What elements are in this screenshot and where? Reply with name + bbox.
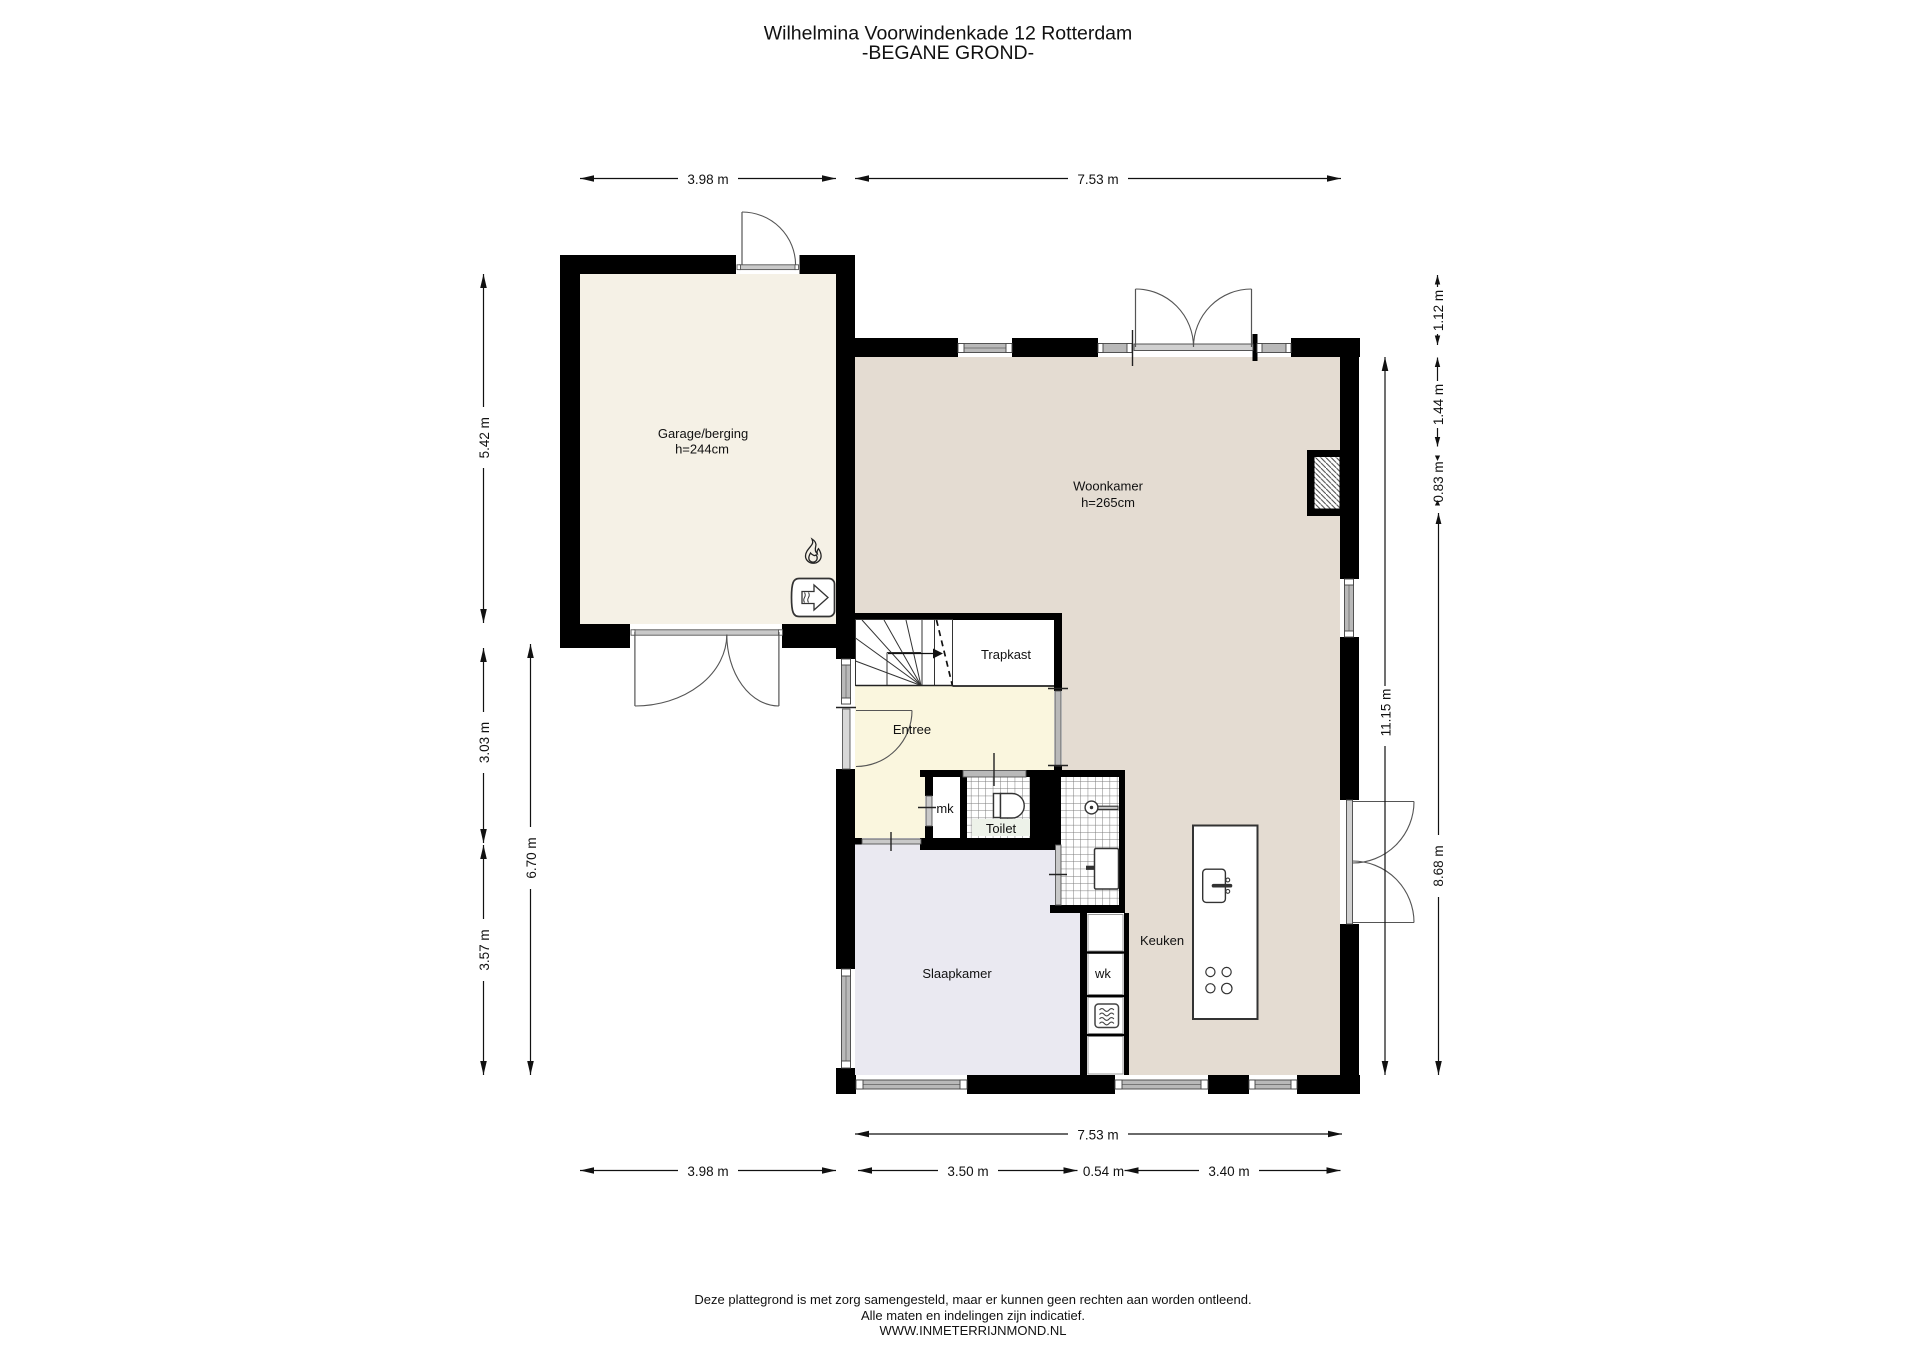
- svg-text:Slaapkamer: Slaapkamer: [922, 966, 992, 981]
- svg-text:Toilet: Toilet: [986, 821, 1017, 836]
- svg-text:Deze plattegrond is met zorg s: Deze plattegrond is met zorg samengestel…: [694, 1292, 1251, 1307]
- svg-text:1.12 m: 1.12 m: [1431, 290, 1446, 331]
- svg-text:7.53 m: 7.53 m: [1077, 172, 1118, 187]
- svg-text:5.42 m: 5.42 m: [477, 417, 492, 458]
- svg-text:1.44 m: 1.44 m: [1431, 384, 1446, 425]
- svg-text:3.40 m: 3.40 m: [1208, 1164, 1249, 1179]
- svg-text:6.70 m: 6.70 m: [524, 837, 539, 878]
- svg-text:Keuken: Keuken: [1140, 933, 1184, 948]
- svg-text:3.57 m: 3.57 m: [477, 929, 492, 970]
- svg-text:3.03 m: 3.03 m: [477, 722, 492, 763]
- svg-text:3.50 m: 3.50 m: [947, 1164, 988, 1179]
- svg-text:Woonkamer: Woonkamer: [1073, 479, 1144, 494]
- svg-text:h=265cm: h=265cm: [1081, 495, 1135, 510]
- svg-text:7.53 m: 7.53 m: [1077, 1128, 1118, 1143]
- svg-text:11.15 m: 11.15 m: [1379, 689, 1394, 737]
- svg-text:Trapkast: Trapkast: [981, 647, 1031, 662]
- svg-text:wk: wk: [1094, 966, 1111, 981]
- svg-text:0.54 m: 0.54 m: [1083, 1164, 1124, 1179]
- svg-text:WWW.INMETERRIJNMOND.NL: WWW.INMETERRIJNMOND.NL: [879, 1323, 1066, 1338]
- svg-text:h=244cm: h=244cm: [675, 442, 729, 457]
- svg-text:3.98 m: 3.98 m: [687, 1164, 728, 1179]
- svg-text:Entree: Entree: [893, 722, 931, 737]
- svg-text:mk: mk: [936, 801, 954, 816]
- svg-text:0.83 m: 0.83 m: [1431, 461, 1446, 502]
- svg-text:Alle maten en indelingen zijn: Alle maten en indelingen zijn indicatief…: [861, 1308, 1085, 1323]
- svg-text:3.98 m: 3.98 m: [687, 172, 728, 187]
- svg-text:-BEGANE GROND-: -BEGANE GROND-: [862, 42, 1034, 64]
- svg-text:Garage/berging: Garage/berging: [658, 426, 748, 441]
- svg-text:Wilhelmina Voorwindenkade 12 R: Wilhelmina Voorwindenkade 12 Rotterdam: [764, 23, 1133, 45]
- svg-text:8.68 m: 8.68 m: [1431, 845, 1446, 886]
